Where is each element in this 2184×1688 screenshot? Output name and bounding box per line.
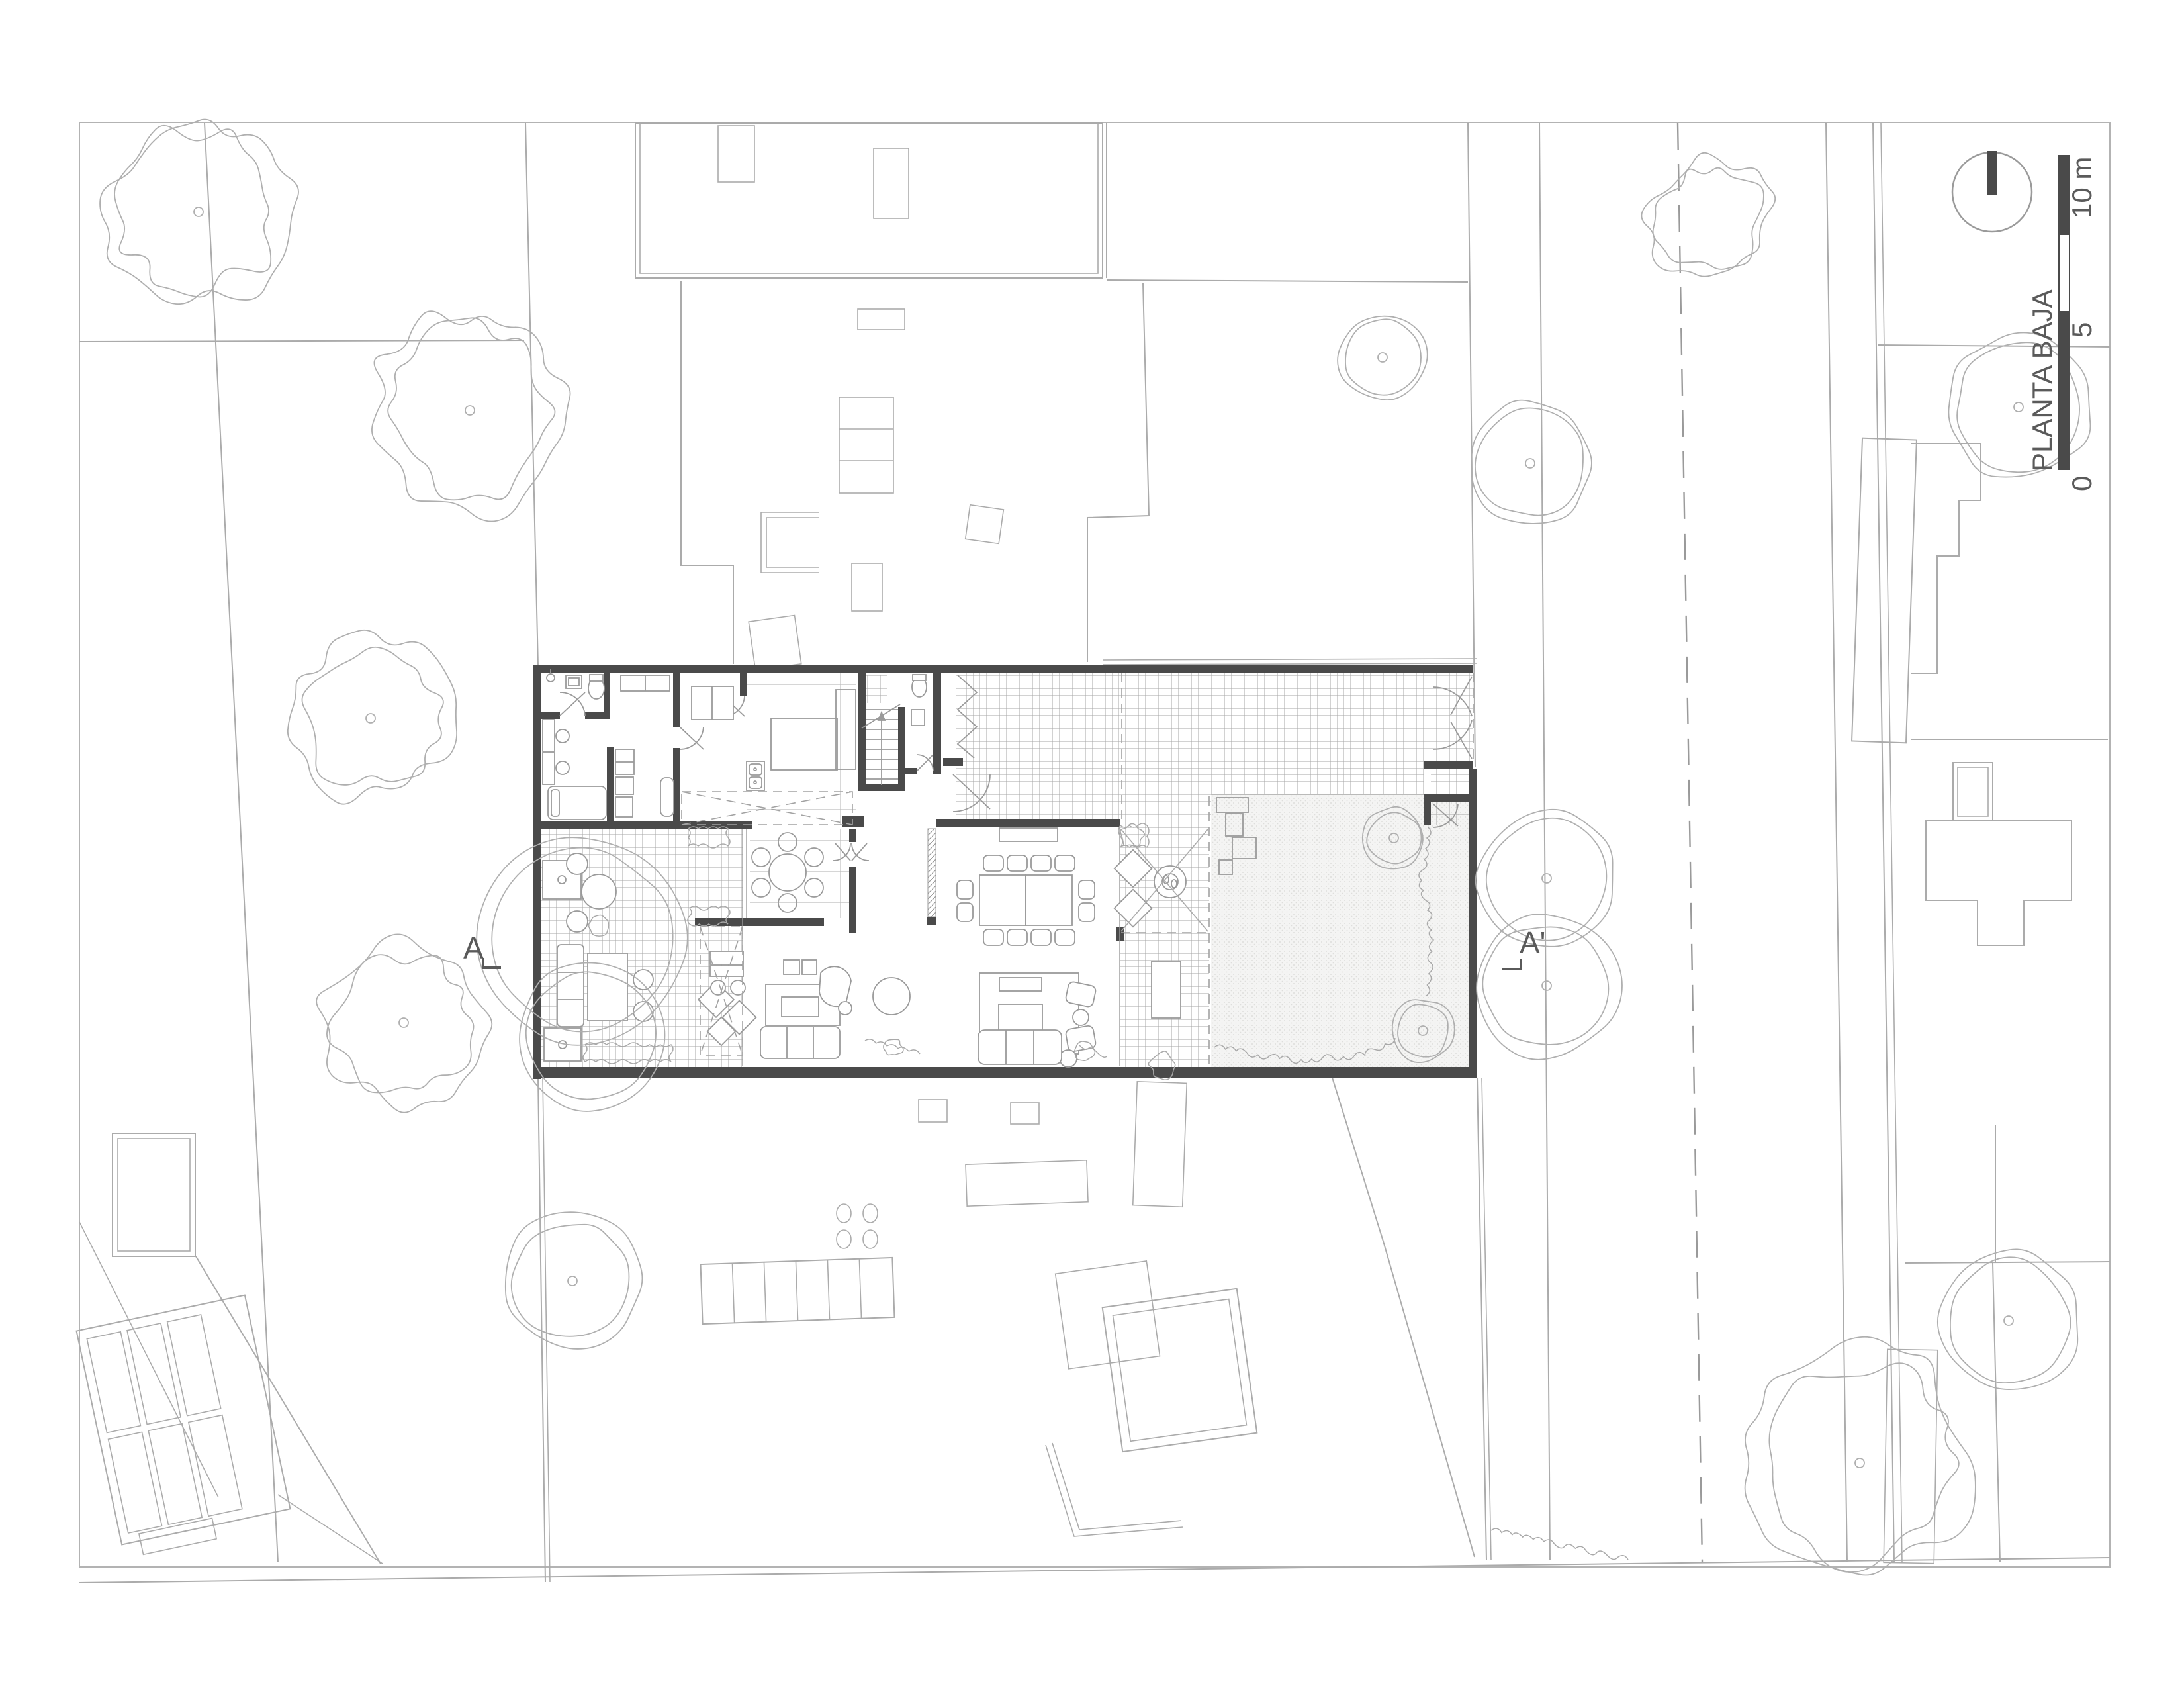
plan-sheet: A A' 10 m 10 m 5 0 PLANTA BAJA (0, 0, 2184, 1688)
garden-vestibule-tiles-a (1431, 769, 1469, 794)
section-cut-mark (1502, 959, 1521, 969)
vegetation-layer (100, 120, 2090, 1575)
sheet-border (79, 122, 2110, 1567)
north-arrow-icon (1952, 151, 2032, 232)
garden-vestibule-tiles-b (1431, 802, 1469, 825)
drawing-title: PLANTA BAJA (2026, 289, 2058, 471)
kitchen-floor (747, 673, 856, 825)
section-cut-mark (483, 958, 501, 968)
floor-plan-canvas: A A' 10 m 10 m 5 0 PLANTA BAJA (0, 0, 2184, 1688)
scale-bar: 10 m (2059, 156, 2184, 1688)
section-marker-a-label: A (463, 931, 484, 965)
section-marker-a-prime-label: A' (1520, 925, 1545, 960)
scale-label-0: 0 (2066, 476, 2097, 491)
scale-label-5: 5 (2066, 322, 2097, 338)
scale-label-10m: 10 m (2066, 157, 2097, 218)
site-context (77, 123, 2110, 1583)
